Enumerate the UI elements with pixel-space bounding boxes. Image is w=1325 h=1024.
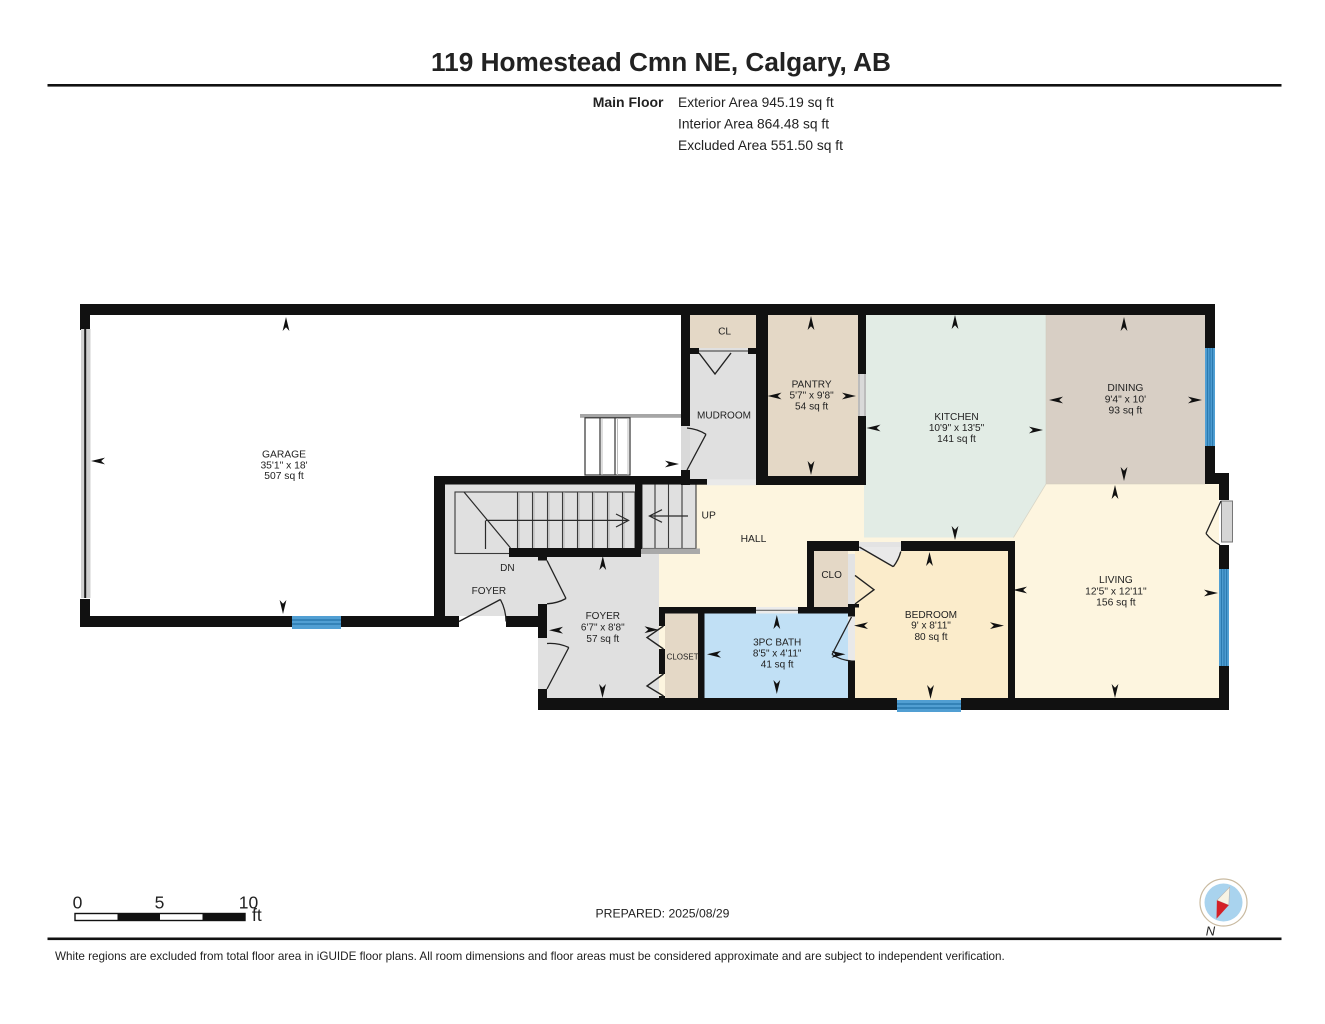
svg-text:N: N xyxy=(1206,924,1216,939)
svg-text:156 sq ft: 156 sq ft xyxy=(1096,597,1136,608)
svg-text:9' x 8'11": 9' x 8'11" xyxy=(911,621,951,632)
svg-text:35'1" x 18': 35'1" x 18' xyxy=(260,460,307,471)
svg-text:Main Floor: Main Floor xyxy=(593,94,664,110)
svg-text:CLOSET: CLOSET xyxy=(667,653,699,662)
svg-text:0: 0 xyxy=(73,893,83,913)
svg-text:LIVING: LIVING xyxy=(1099,575,1133,586)
svg-text:57 sq ft: 57 sq ft xyxy=(586,634,619,645)
svg-text:80 sq ft: 80 sq ft xyxy=(914,632,947,643)
svg-text:BEDROOM: BEDROOM xyxy=(905,610,957,621)
svg-text:CLO: CLO xyxy=(821,570,842,581)
svg-text:507 sq ft: 507 sq ft xyxy=(264,471,304,482)
svg-text:10'9" x 13'5": 10'9" x 13'5" xyxy=(929,423,985,434)
svg-text:5'7" x 9'8": 5'7" x 9'8" xyxy=(790,391,835,402)
svg-text:FOYER: FOYER xyxy=(586,611,620,622)
svg-text:12'5" x 12'11": 12'5" x 12'11" xyxy=(1085,586,1147,597)
svg-text:PREPARED: 2025/08/29: PREPARED: 2025/08/29 xyxy=(596,907,730,921)
svg-text:FOYER: FOYER xyxy=(472,586,506,597)
svg-text:Excluded Area 551.50 sq ft: Excluded Area 551.50 sq ft xyxy=(678,138,843,153)
svg-text:5: 5 xyxy=(155,893,165,913)
svg-text:UP: UP xyxy=(702,511,716,522)
svg-text:119 Homestead Cmn NE, Calgary,: 119 Homestead Cmn NE, Calgary, AB xyxy=(431,47,891,77)
svg-text:Exterior Area 945.19 sq ft: Exterior Area 945.19 sq ft xyxy=(678,95,834,110)
svg-text:9'4" x 10': 9'4" x 10' xyxy=(1105,394,1146,405)
svg-text:3PC BATH: 3PC BATH xyxy=(753,638,801,649)
svg-text:41 sq ft: 41 sq ft xyxy=(761,660,794,671)
svg-text:PANTRY: PANTRY xyxy=(792,380,832,391)
svg-text:GARAGE: GARAGE xyxy=(262,450,306,461)
svg-text:KITCHEN: KITCHEN xyxy=(934,412,978,423)
svg-text:Interior Area 864.48 sq ft: Interior Area 864.48 sq ft xyxy=(678,117,829,132)
svg-text:ft: ft xyxy=(252,905,262,925)
svg-text:6'7" x 8'8": 6'7" x 8'8" xyxy=(581,622,625,633)
svg-text:8'5" x 4'11": 8'5" x 4'11" xyxy=(753,649,802,660)
svg-text:DN: DN xyxy=(500,563,514,574)
svg-text:141 sq ft: 141 sq ft xyxy=(937,434,976,445)
svg-text:CL: CL xyxy=(718,327,731,338)
svg-text:93 sq ft: 93 sq ft xyxy=(1109,405,1143,416)
svg-text:54 sq ft: 54 sq ft xyxy=(795,402,828,413)
svg-text:White regions are excluded fro: White regions are excluded from total fl… xyxy=(55,950,1005,963)
svg-text:MUDROOM: MUDROOM xyxy=(697,411,751,422)
svg-text:HALL: HALL xyxy=(741,534,767,545)
svg-text:DINING: DINING xyxy=(1107,383,1143,394)
